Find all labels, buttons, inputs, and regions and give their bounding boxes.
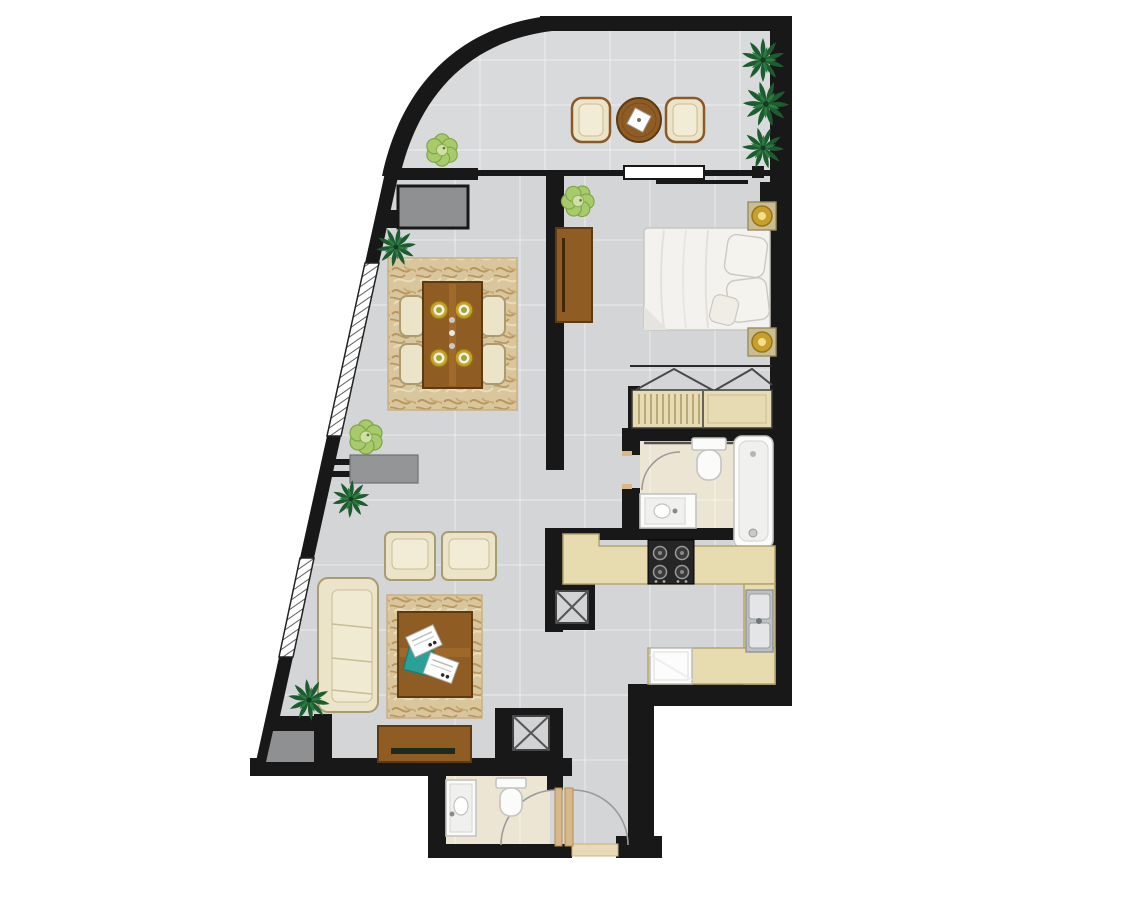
- wall-top: [540, 16, 792, 31]
- place-setting: [430, 301, 448, 319]
- wall-alcove-stub-v: [314, 714, 332, 764]
- wall-corridor-foot: [616, 836, 662, 858]
- planter-alcove-top-left: [398, 186, 468, 228]
- sliding-door-panel: [656, 180, 748, 184]
- faucet: [450, 812, 455, 817]
- dresser-handle: [562, 238, 565, 312]
- place-setting: [430, 349, 448, 367]
- floor-plan-svg: [0, 0, 1140, 897]
- wall-balcony-partition: [392, 170, 772, 176]
- bathroom-door-jamb: [622, 484, 632, 489]
- tv-screen: [391, 748, 455, 754]
- console-top: [350, 455, 418, 483]
- alcove-bottom-left: [266, 731, 314, 762]
- dining-chair-tl: [400, 296, 424, 336]
- powder-vanity: [446, 780, 476, 836]
- shrub-plant: [350, 420, 382, 454]
- balcony-furniture: [572, 98, 704, 142]
- bistro-chair-right-cushion: [673, 104, 697, 136]
- armchair-left-cushion: [392, 539, 428, 569]
- wardrobe: [632, 390, 772, 428]
- basin: [454, 797, 468, 815]
- sofa-seat: [332, 590, 372, 702]
- wall-corridor-right: [628, 684, 654, 842]
- bathtub-drain: [750, 451, 756, 457]
- stove: [648, 540, 694, 584]
- shaft-kitchen: [556, 591, 588, 623]
- sliding-door-fixed-pane: [624, 166, 704, 179]
- dining-set: [400, 282, 505, 388]
- powder-door-leaf: [555, 788, 562, 846]
- tv-cabinet: [378, 726, 471, 762]
- entry-door-leaf: [565, 788, 573, 846]
- dresser: [556, 228, 592, 322]
- shaft-entry: [513, 716, 549, 750]
- armchair-right-cushion: [449, 539, 489, 569]
- table-accessory: [449, 317, 455, 323]
- entry-threshold: [572, 844, 618, 856]
- refrigerator: [650, 648, 692, 684]
- floor-plan-canvas: [0, 0, 1140, 897]
- nightstand-bottom: [748, 328, 776, 356]
- bathroom-door-jamb: [622, 451, 632, 456]
- powder-toilet: [496, 778, 526, 816]
- pillow: [723, 233, 768, 278]
- dining-chair-br: [481, 344, 505, 384]
- place-setting: [455, 349, 473, 367]
- shrub-plant: [427, 134, 457, 166]
- table-accessory: [449, 330, 455, 336]
- wall-powder-bottom: [428, 844, 572, 858]
- dining-chair-bl: [400, 344, 424, 384]
- nightstand-top: [748, 202, 776, 230]
- bistro-chair-left-cushion: [579, 104, 603, 136]
- basin: [654, 504, 670, 518]
- faucet: [756, 618, 762, 624]
- wall-partition-stub: [752, 166, 764, 178]
- place-setting: [455, 301, 473, 319]
- bathroom-vanity: [640, 494, 696, 528]
- table-accessory: [449, 343, 455, 349]
- kitchen-sink: [746, 590, 773, 652]
- bathtub-faucet: [749, 529, 757, 537]
- dining-chair-tr: [481, 296, 505, 336]
- faucet: [673, 509, 678, 514]
